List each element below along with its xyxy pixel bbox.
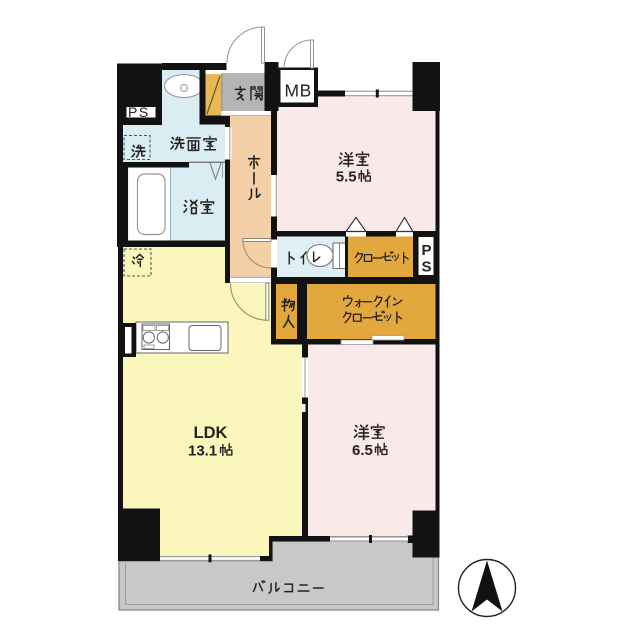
svg-text:MB: MB xyxy=(285,81,312,101)
svg-text:5.5: 5.5 xyxy=(336,169,357,186)
svg-text:13.1: 13.1 xyxy=(188,443,217,460)
svg-text:LDK: LDK xyxy=(194,424,228,442)
svg-text:S: S xyxy=(422,259,432,276)
svg-text:P: P xyxy=(422,242,432,259)
svg-text:PS: PS xyxy=(128,104,150,120)
svg-text:6.5: 6.5 xyxy=(352,442,373,459)
